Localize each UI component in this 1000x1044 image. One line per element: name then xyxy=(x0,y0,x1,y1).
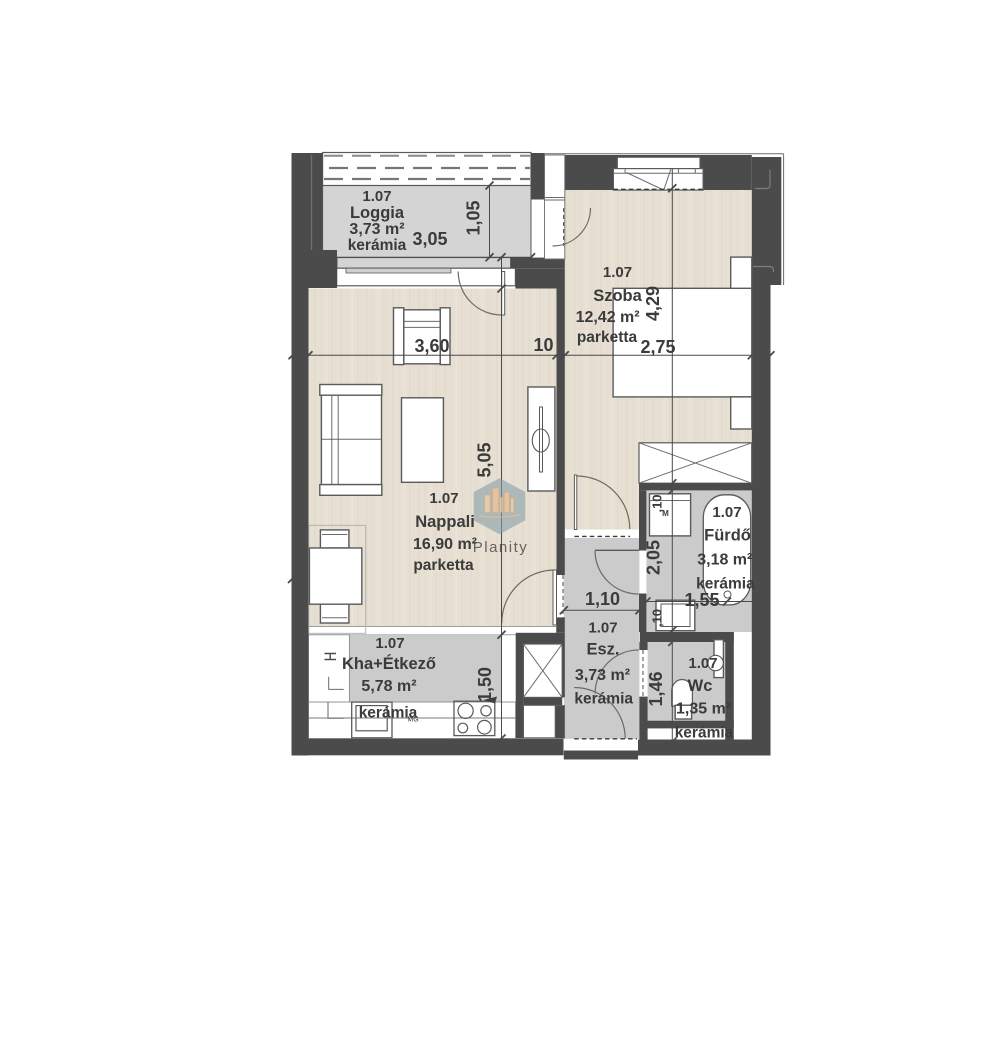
svg-text:16,90 m²: 16,90 m² xyxy=(413,536,477,553)
svg-text:1,05: 1,05 xyxy=(464,200,484,235)
svg-text:Esz.: Esz. xyxy=(586,641,619,659)
svg-text:,10: ,10 xyxy=(650,609,665,627)
svg-text:1.07: 1.07 xyxy=(603,264,632,281)
svg-text:5,78 m²: 5,78 m² xyxy=(361,678,416,695)
svg-text:Loggia: Loggia xyxy=(350,204,405,222)
svg-text:3,73 m²: 3,73 m² xyxy=(575,667,630,684)
svg-text:1.07: 1.07 xyxy=(688,655,717,672)
svg-text:1,46: 1,46 xyxy=(646,671,666,706)
svg-text:1.07: 1.07 xyxy=(429,490,458,507)
svg-text:1.07: 1.07 xyxy=(712,504,741,521)
svg-text:2,05: 2,05 xyxy=(644,540,664,575)
svg-text:3,18 m²: 3,18 m² xyxy=(697,552,752,569)
svg-text:Fürdő: Fürdő xyxy=(704,527,751,545)
svg-text:3,73 m²: 3,73 m² xyxy=(349,221,404,238)
svg-text:MG: MG xyxy=(407,717,418,724)
svg-text:1.07: 1.07 xyxy=(588,620,617,637)
svg-text:1,35 m²: 1,35 m² xyxy=(676,701,731,718)
svg-text:Wc: Wc xyxy=(688,677,713,695)
svg-text:5,05: 5,05 xyxy=(475,442,495,477)
svg-text:1.07: 1.07 xyxy=(362,188,391,205)
svg-text:parketta: parketta xyxy=(577,329,638,346)
svg-text:1,10: 1,10 xyxy=(585,589,620,609)
svg-text:,10: ,10 xyxy=(650,494,665,512)
svg-text:2,75: 2,75 xyxy=(640,337,675,357)
svg-text:10: 10 xyxy=(533,335,553,355)
svg-text:3,05: 3,05 xyxy=(412,229,447,249)
svg-text:Nappali: Nappali xyxy=(415,513,475,531)
svg-text:Planity: Planity xyxy=(473,539,529,556)
svg-text:1.07: 1.07 xyxy=(375,635,404,652)
svg-text:1,55: 1,55 xyxy=(684,590,719,610)
svg-text:kerámia: kerámia xyxy=(348,237,407,254)
svg-text:parketta: parketta xyxy=(413,557,474,574)
svg-text:Szoba: Szoba xyxy=(593,287,642,305)
svg-text:kerámia: kerámia xyxy=(675,725,734,742)
svg-text:3,60: 3,60 xyxy=(414,336,449,356)
svg-text:kerámia: kerámia xyxy=(574,690,633,707)
svg-text:4,29: 4,29 xyxy=(643,286,663,321)
svg-text:12,42 m²: 12,42 m² xyxy=(576,309,640,326)
svg-text:Kha+Étkező: Kha+Étkező xyxy=(342,654,436,673)
svg-text:1,50: 1,50 xyxy=(475,667,495,702)
